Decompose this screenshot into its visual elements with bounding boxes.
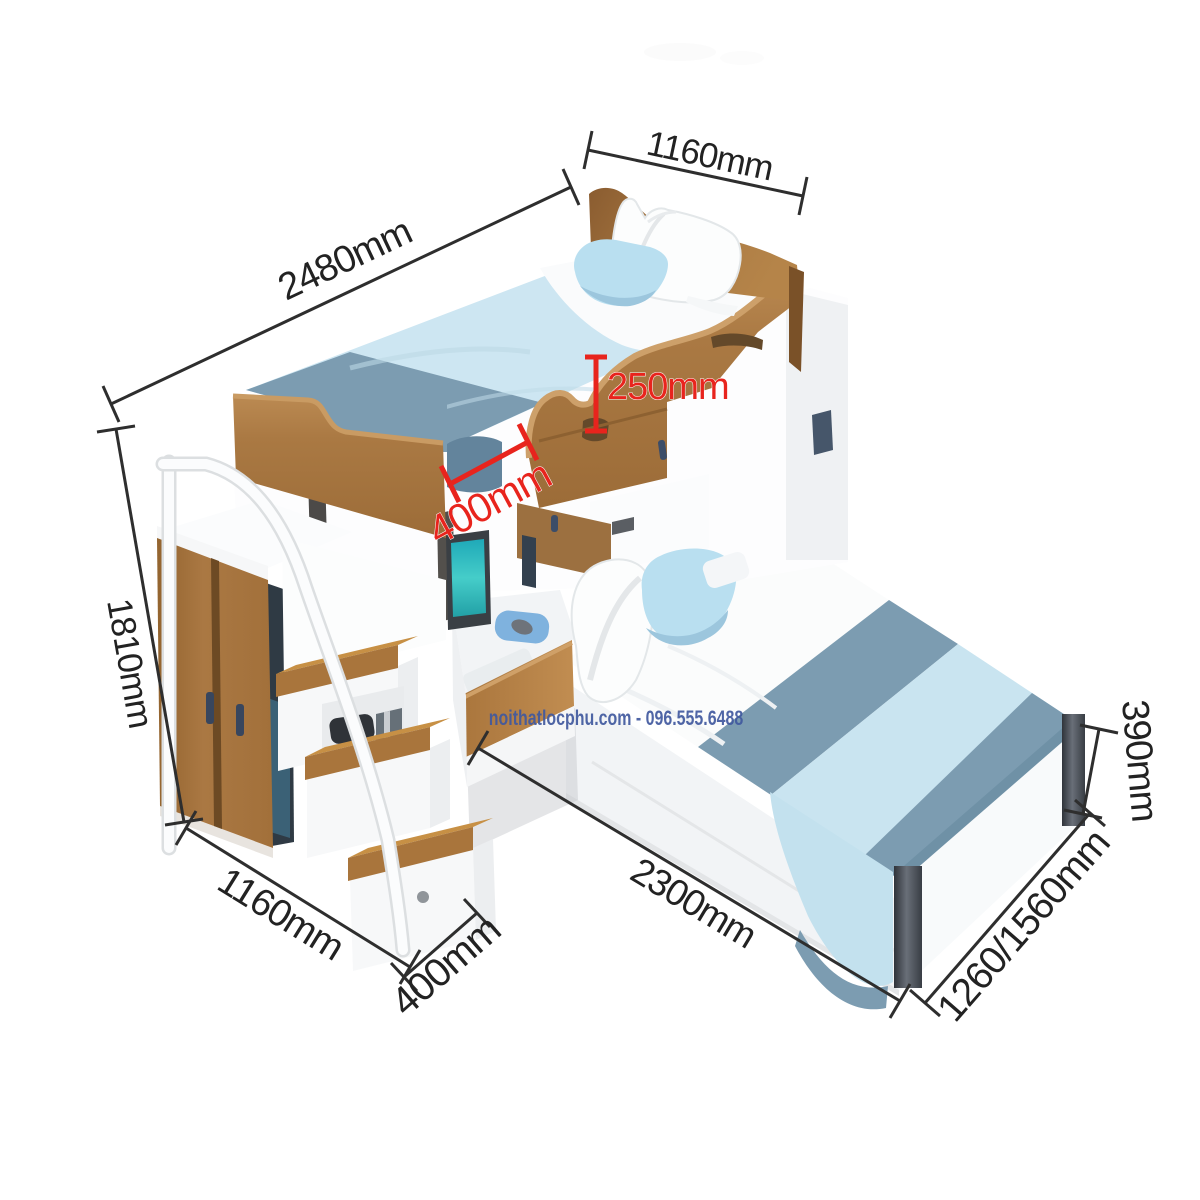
svg-text:noithatlocphu.com - 096.555.64: noithatlocphu.com - 096.555.6488 [489,706,743,730]
svg-text:250mm: 250mm [607,366,729,408]
